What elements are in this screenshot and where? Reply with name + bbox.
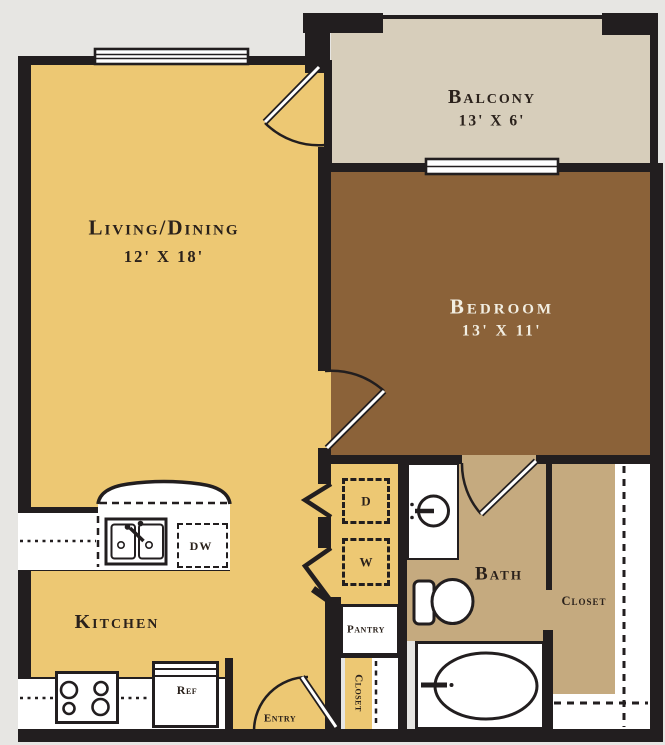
living-room-dims: 12' X 18' bbox=[124, 249, 204, 266]
dryer-label: D bbox=[361, 495, 370, 508]
bedroom-dims: 13' X 11' bbox=[462, 323, 542, 339]
balcony-dims: 13' X 6' bbox=[459, 113, 526, 129]
bedroom-label: Bedroom bbox=[450, 297, 554, 318]
entry-label: Entry bbox=[264, 714, 296, 725]
window-sliding-door-balcony bbox=[426, 159, 558, 174]
symbol-overlay bbox=[0, 0, 665, 745]
wall-diagonal-stub bbox=[313, 589, 330, 601]
bath-label: Bath bbox=[475, 565, 523, 584]
closet-label: Closet bbox=[561, 595, 606, 608]
toilet bbox=[414, 580, 473, 625]
washer-label: W bbox=[360, 556, 373, 569]
door-bedroom bbox=[325, 371, 384, 448]
living-room-label: Living/Dining bbox=[88, 218, 239, 239]
floorplan: Living/Dining 12' X 18' Balcony 13' X 6'… bbox=[0, 0, 665, 745]
kitchen-bar-arch bbox=[98, 482, 230, 505]
bathtub bbox=[421, 653, 537, 719]
refrigerator-lines bbox=[154, 669, 217, 676]
window-living bbox=[95, 49, 248, 64]
stove-burners bbox=[61, 682, 109, 715]
bifold-door-dryer bbox=[305, 484, 331, 517]
door-bath bbox=[462, 461, 536, 514]
door-balcony bbox=[265, 67, 325, 145]
pantry-label: Pantry bbox=[347, 625, 385, 636]
entry-closet-label: Closet bbox=[353, 674, 364, 712]
balcony-label: Balcony bbox=[448, 87, 536, 107]
kitchen-label: Kitchen bbox=[75, 612, 160, 632]
bath-sink bbox=[410, 496, 448, 526]
kitchen-sink bbox=[106, 519, 166, 564]
refrigerator-label: Ref bbox=[177, 684, 197, 696]
dishwasher-label: DW bbox=[190, 540, 213, 552]
